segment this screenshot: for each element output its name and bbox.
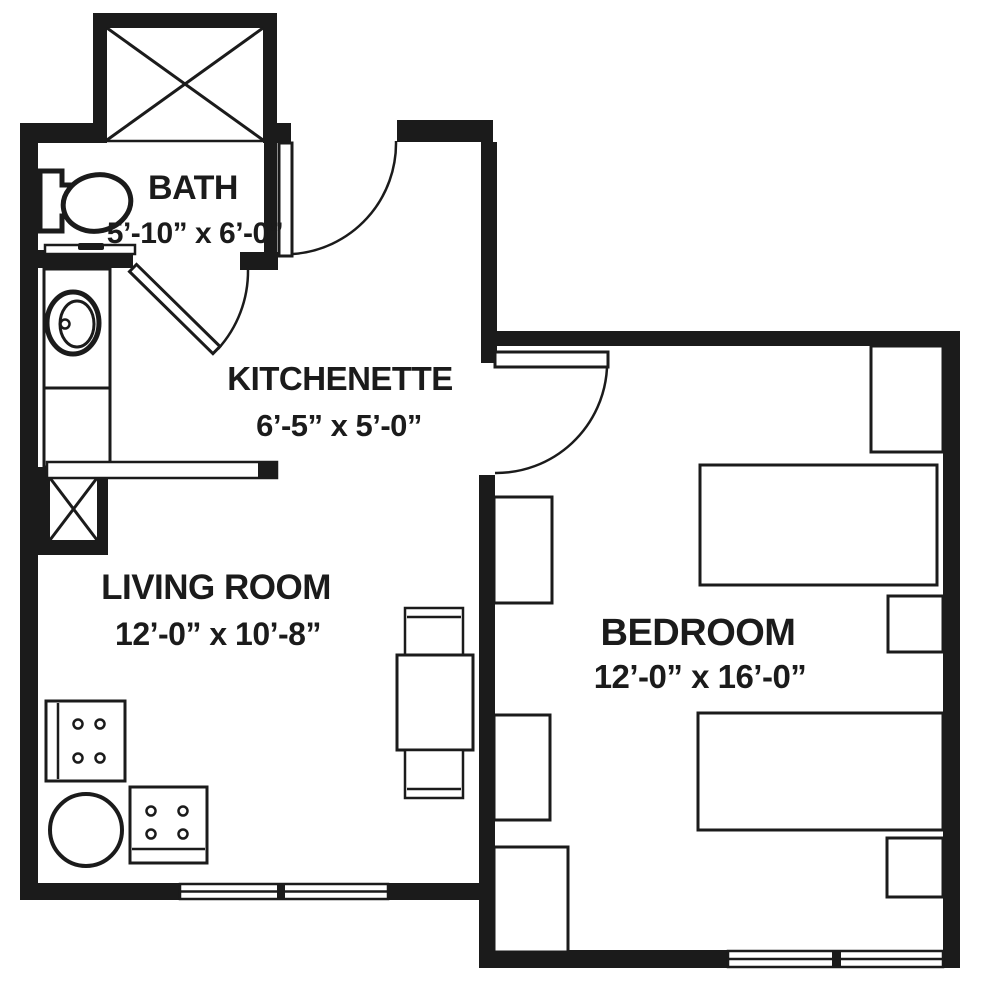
armchair-button: [147, 830, 156, 839]
kitchen-peninsula-end-cap: [258, 462, 277, 478]
kitchenette-dimensions: 6’-5” x 5’-0”: [256, 408, 422, 443]
wall-shower-right: [263, 13, 277, 143]
living-room-label: LIVING ROOM: [101, 568, 331, 607]
bath-door-swing-arc: [218, 270, 248, 349]
nightstand: [888, 596, 943, 652]
bath-label: BATH: [148, 169, 238, 207]
kitchenette-label: KITCHENETTE: [227, 360, 453, 397]
wall-bedroom-top: [481, 331, 960, 346]
dining-chair: [405, 608, 463, 655]
wall-right-outer: [943, 331, 960, 968]
dresser: [494, 497, 552, 603]
bed: [700, 465, 937, 585]
dining-chair: [405, 750, 463, 798]
bedroom-label: BEDROOM: [601, 612, 796, 654]
wardrobe: [871, 346, 943, 452]
floor-plan: BATH 5’-10” x 6’-0” KITCHENETTE 6’-5” x …: [0, 0, 1000, 1000]
armchair-button: [74, 754, 83, 763]
armchair-button: [147, 807, 156, 816]
wall-bath-top: [20, 123, 95, 143]
wall-shower-left: [93, 13, 107, 143]
dresser: [494, 715, 550, 820]
bedroom-door-swing-arc: [495, 368, 607, 473]
wall-entry-top: [397, 120, 493, 142]
floor-plan-canvas: BATH 5’-10” x 6’-0” KITCHENETTE 6’-5” x …: [0, 0, 1000, 1000]
entry-door-swing-arc: [293, 141, 396, 254]
wall-living-bottom-right: [387, 883, 493, 900]
armchair-button: [96, 720, 105, 729]
wall-shower-step: [277, 123, 291, 143]
utility-chase: [38, 467, 108, 555]
wall-entry-vertical: [481, 142, 497, 363]
armchair-button: [179, 830, 188, 839]
kitchen-sink-drain-icon: [61, 320, 70, 329]
armchair-button: [96, 754, 105, 763]
bedroom-window-mullion: [832, 951, 841, 967]
armchair: [130, 787, 207, 863]
dining-table: [397, 655, 473, 750]
wall-bath-door-jamb: [240, 252, 278, 270]
wall-living-bottom-left: [20, 883, 180, 900]
round-side-table: [50, 794, 122, 866]
armchair-button: [74, 720, 83, 729]
nightstand: [887, 838, 943, 897]
living-room-dimensions: 12’-0” x 10’-8”: [115, 616, 321, 652]
bed: [698, 713, 943, 830]
kitchen-peninsula-counter: [47, 462, 277, 478]
shower-stall: [107, 28, 263, 141]
bath-door-leaf: [129, 264, 219, 353]
bath-dimensions: 5’-10” x 6’-0”: [107, 217, 283, 250]
wall-left-outer: [20, 123, 38, 900]
dresser: [494, 847, 568, 952]
bath-faucet-icon: [78, 243, 104, 250]
armchair-button: [179, 807, 188, 816]
bedroom-dimensions: 12’-0” x 16’-0”: [594, 658, 807, 695]
wall-shower-top: [93, 13, 277, 28]
living-room-window-mullion: [277, 884, 285, 899]
bedroom-door-leaf: [495, 352, 608, 367]
